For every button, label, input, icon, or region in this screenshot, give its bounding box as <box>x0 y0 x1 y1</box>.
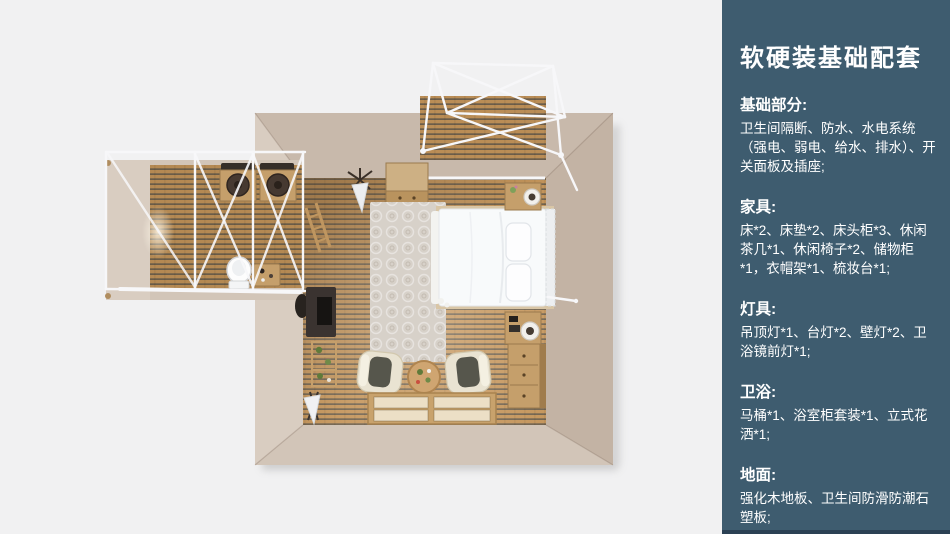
section-body: 马桶*1、浴室柜套装*1、立式花洒*1; <box>740 406 938 444</box>
section-heading: 地面: <box>740 466 938 486</box>
armchair-right <box>444 350 492 395</box>
section-lighting: 灯具: 吊顶灯*1、台灯*2、壁灯*2、卫浴镜前灯*1; <box>740 300 938 361</box>
section-heading: 家具: <box>740 198 938 218</box>
info-panel: 软硬装基础配套 基础部分: 卫生间隔断、防水、水电系统（强电、弱电、给水、排水）… <box>722 0 950 534</box>
nightstand-top <box>505 183 541 210</box>
dresser <box>508 344 546 408</box>
tatami-platform <box>368 393 496 424</box>
section-body: 强化木地板、卫生间防滑防潮石塑板; <box>740 489 938 527</box>
section-flooring: 地面: 强化木地板、卫生间防滑防潮石塑板; <box>740 466 938 527</box>
section-body: 吊顶灯*1、台灯*2、壁灯*2、卫浴镜前灯*1; <box>740 323 938 361</box>
section-heading: 卫浴: <box>740 383 938 403</box>
section-furniture: 家具: 床*2、床垫*2、床头柜*3、休闲茶几*1、休闲椅子*2、储物柜*1，衣… <box>740 198 938 278</box>
headboard <box>546 209 555 306</box>
pillow-top <box>506 223 531 261</box>
section-heading: 基础部分: <box>740 96 938 116</box>
nightstand-bottom <box>505 312 541 344</box>
section-bathroom: 卫浴: 马桶*1、浴室柜套装*1、立式花洒*1; <box>740 383 938 444</box>
armchair-left <box>356 350 404 395</box>
pillow-bottom <box>506 264 531 301</box>
storage-cabinet <box>386 163 428 205</box>
coffee-table <box>408 361 440 393</box>
section-body: 床*2、床垫*2、床头柜*3、休闲茶几*1、休闲椅子*2、储物柜*1，衣帽架*1… <box>740 221 938 278</box>
bed <box>431 206 555 309</box>
floorplan-render <box>0 0 722 534</box>
section-heading: 灯具: <box>740 300 938 320</box>
section-body: 卫生间隔断、防水、水电系统（强电、弱电、给水、排水）、开关面板及插座; <box>740 119 938 176</box>
desk-monitor <box>317 297 332 325</box>
panel-title: 软硬装基础配套 <box>740 44 938 74</box>
section-basics: 基础部分: 卫生间隔断、防水、水电系统（强电、弱电、给水、排水）、开关面板及插座… <box>740 96 938 176</box>
slide: 软硬装基础配套 基础部分: 卫生间隔断、防水、水电系统（强电、弱电、给水、排水）… <box>0 0 950 534</box>
